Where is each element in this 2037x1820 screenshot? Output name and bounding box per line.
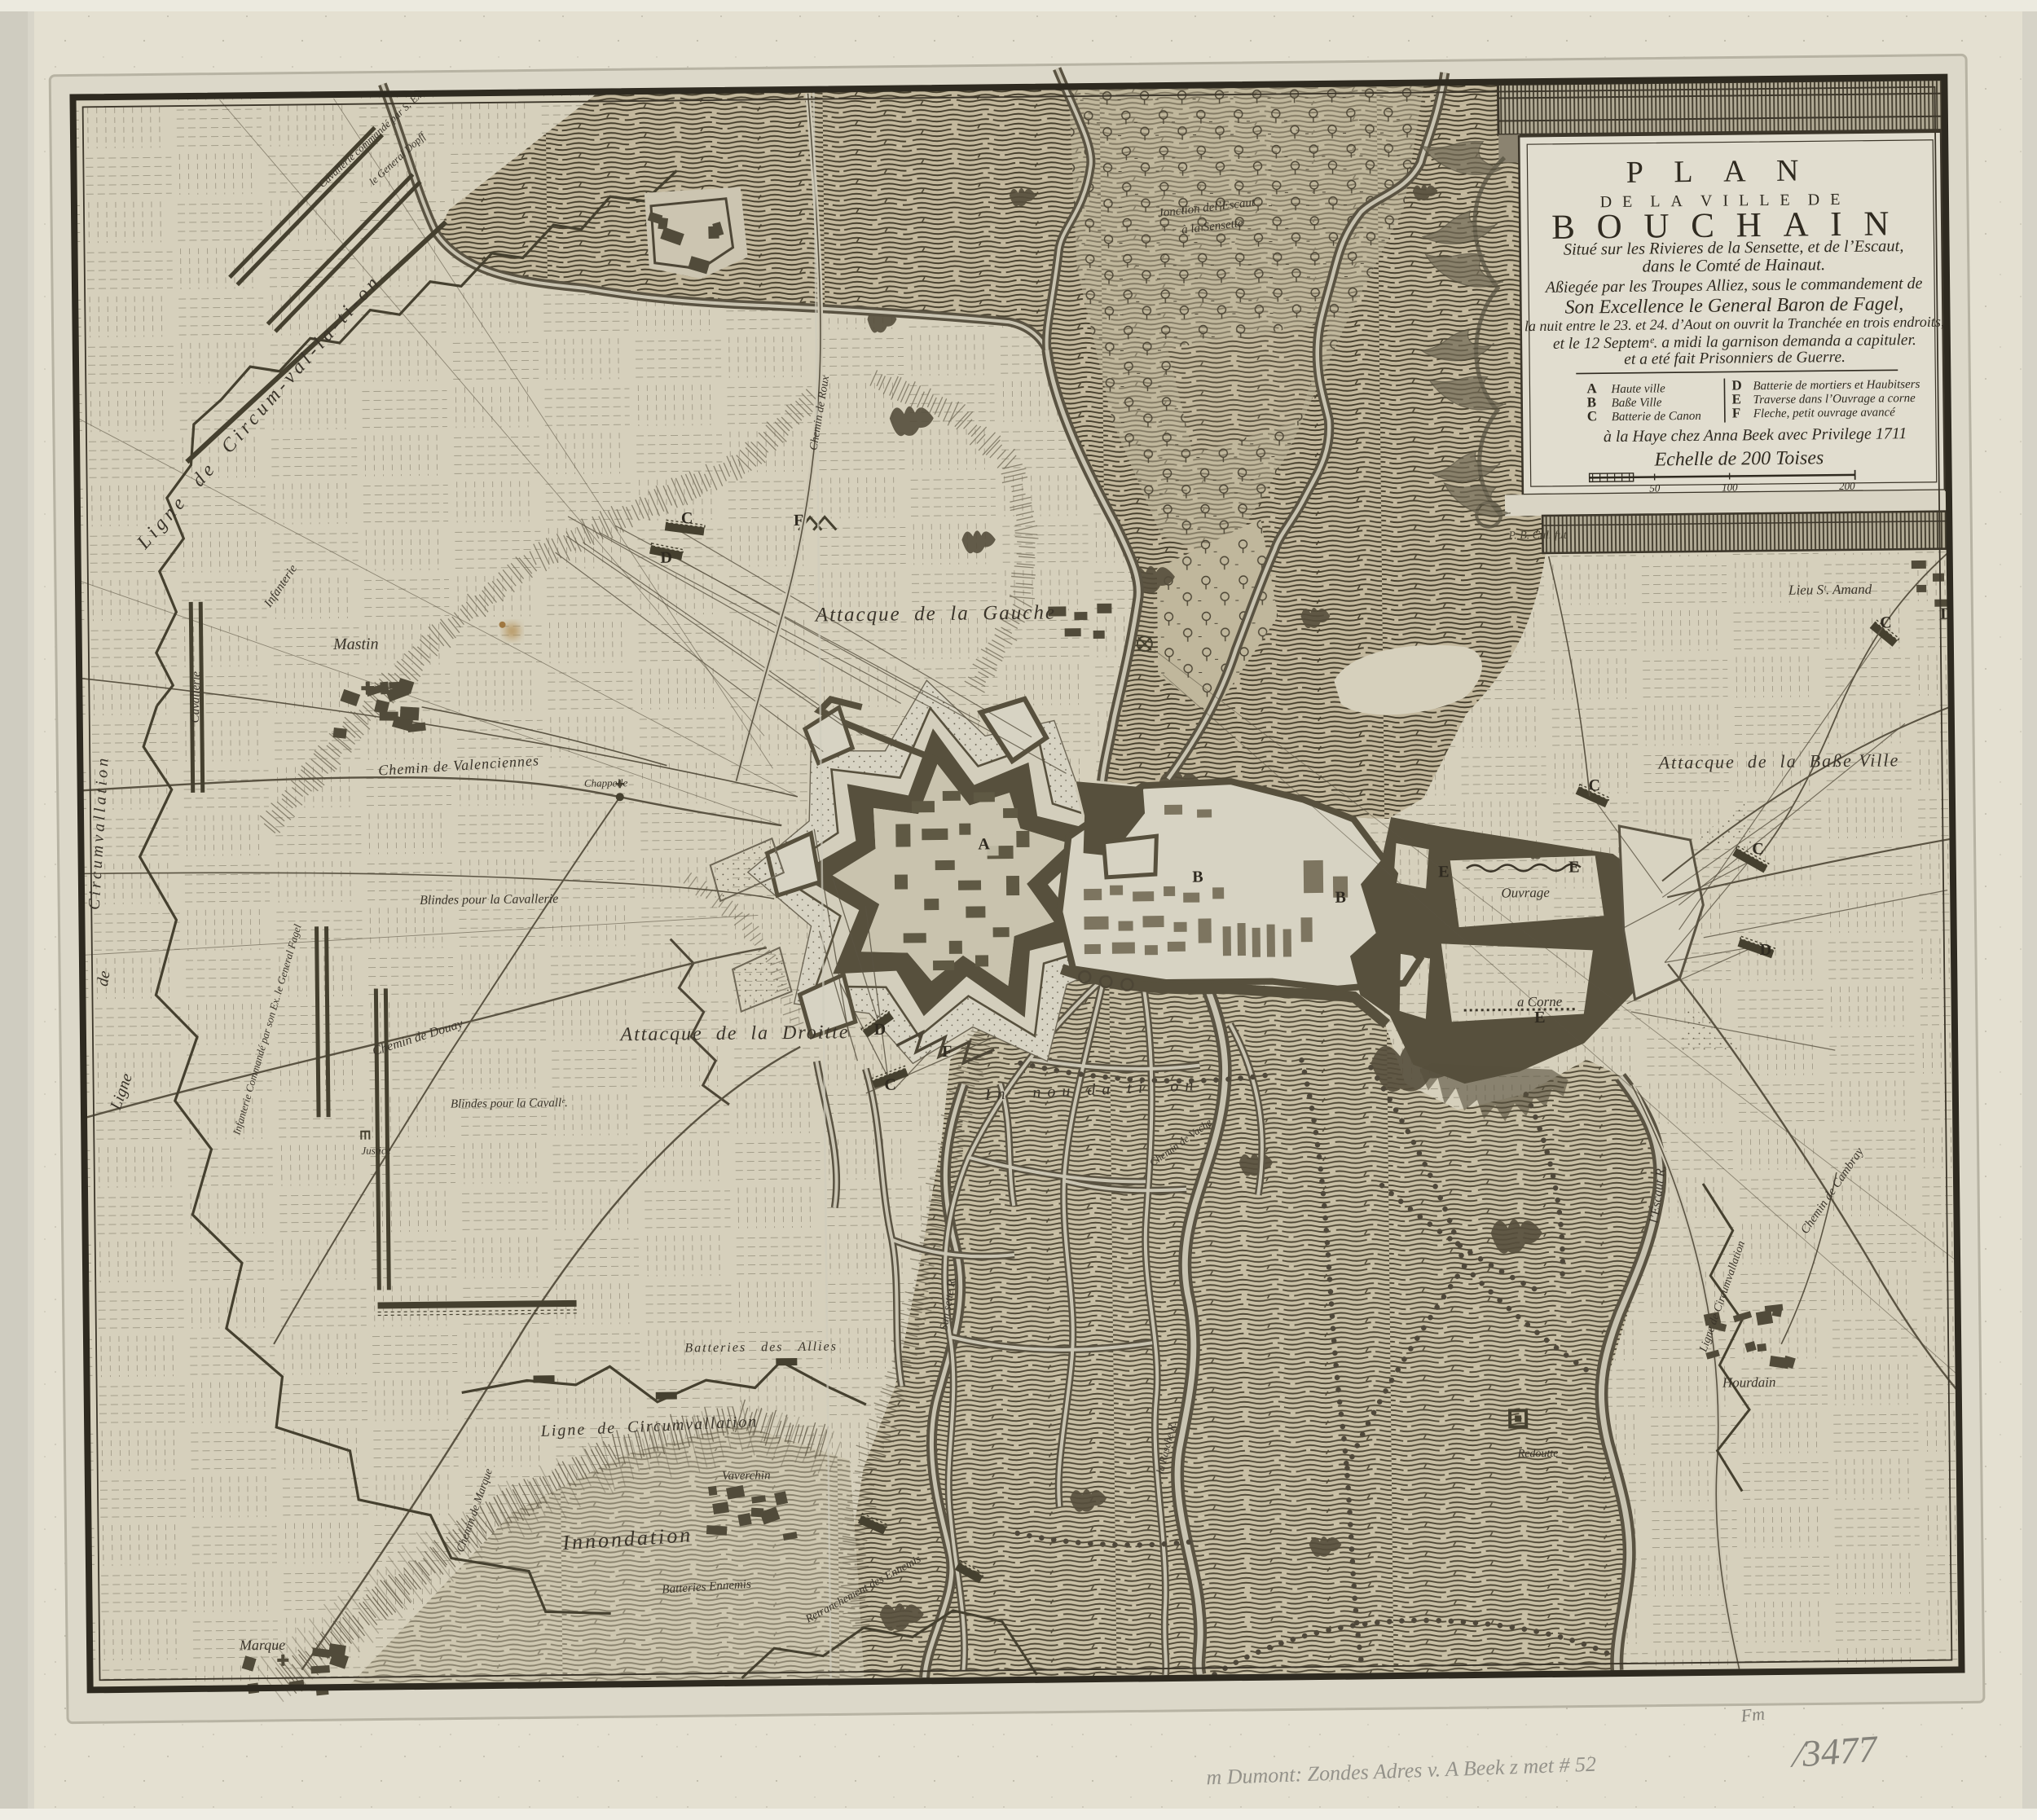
svg-text:C: C bbox=[1880, 613, 1892, 631]
svg-text:100: 100 bbox=[1722, 481, 1738, 493]
svg-text:F: F bbox=[794, 512, 803, 530]
svg-text:D: D bbox=[1760, 941, 1772, 959]
svg-text:Attacque de la Gauche: Attacque de la Gauche bbox=[814, 601, 1056, 626]
svg-text:E: E bbox=[1438, 863, 1450, 881]
svg-text:à la Haye chez Anna Beek avec: à la Haye chez Anna Beek avec Privilege … bbox=[1604, 424, 1907, 446]
svg-text:E: E bbox=[1534, 1009, 1546, 1026]
svg-text:C: C bbox=[681, 509, 693, 527]
svg-text:C: C bbox=[1588, 776, 1600, 794]
svg-text:Ouvrage: Ouvrage bbox=[1501, 885, 1550, 901]
svg-text:Chappelle: Chappelle bbox=[584, 776, 628, 789]
svg-text:C: C bbox=[884, 1076, 896, 1094]
svg-text:P L A N: P L A N bbox=[1626, 153, 1810, 189]
svg-text:50: 50 bbox=[1649, 481, 1661, 494]
svg-text:dans le Comté de Hainaut.: dans le Comté de Hainaut. bbox=[1642, 254, 1825, 275]
svg-text:Baße Ville: Baße Ville bbox=[1612, 396, 1662, 410]
svg-text:F: F bbox=[942, 1043, 952, 1061]
svg-text:Redoutte: Redoutte bbox=[1517, 1448, 1559, 1461]
svg-text:P. B. Cal. fut: P. B. Cal. fut bbox=[1507, 530, 1568, 543]
svg-text:B: B bbox=[1335, 889, 1346, 907]
svg-text:A: A bbox=[978, 835, 990, 853]
svg-text:Batterie de mortiers et Haubit: Batterie de mortiers et Haubitsers bbox=[1753, 378, 1920, 393]
svg-text:de: de bbox=[94, 969, 114, 987]
svg-text:Haute ville: Haute ville bbox=[1610, 382, 1665, 396]
svg-text:Blindes pour la Cavallᵉ.: Blindes pour la Cavallᵉ. bbox=[451, 1097, 568, 1111]
svg-text:Hourdain: Hourdain bbox=[1722, 1374, 1776, 1391]
svg-text:Traverse dans l’Ouvrage a corn: Traverse dans l’Ouvrage a corne bbox=[1753, 392, 1916, 407]
svg-text:Lieu Sᵗ. Amand: Lieu Sᵗ. Amand bbox=[1788, 582, 1872, 598]
svg-text:Blindes pour la Cavallerie: Blindes pour la Cavallerie bbox=[420, 892, 558, 908]
svg-text:B: B bbox=[1192, 868, 1203, 886]
svg-text:Cavallerie: Cavallerie bbox=[189, 671, 204, 723]
svg-text:Echelle de 200 Toises: Echelle de 200 Toises bbox=[1653, 447, 1824, 470]
svg-text:Fm: Fm bbox=[1739, 1704, 1766, 1726]
svg-text:200: 200 bbox=[1839, 480, 1855, 492]
svg-text:Mastin: Mastin bbox=[332, 635, 379, 653]
svg-text:Vaverchin: Vaverchin bbox=[722, 1469, 771, 1483]
svg-text:D: D bbox=[874, 1021, 887, 1039]
svg-text:C: C bbox=[1587, 408, 1597, 424]
svg-text:F: F bbox=[1732, 405, 1741, 420]
svg-text:Fleche, petit ouvrage avancé: Fleche, petit ouvrage avancé bbox=[1753, 406, 1897, 420]
svg-text:⁄3477: ⁄3477 bbox=[1787, 1727, 1880, 1775]
svg-text:D: D bbox=[660, 549, 672, 567]
svg-text:C: C bbox=[1752, 840, 1764, 858]
svg-text:Batterie de Canon: Batterie de Canon bbox=[1612, 410, 1701, 424]
svg-text:et a eté fait Prisonniers de G: et a eté fait Prisonniers de Guerre. bbox=[1624, 349, 1846, 368]
svg-text:Marque: Marque bbox=[239, 1637, 286, 1654]
svg-text:Batteries des Allies: Batteries des Allies bbox=[684, 1339, 838, 1355]
svg-text:Attacque de la Baße Ville: Attacque de la Baße Ville bbox=[1656, 750, 1899, 772]
svg-text:E: E bbox=[1568, 859, 1580, 877]
svg-text:Justice: Justice bbox=[361, 1144, 390, 1156]
svg-text:Attacque de la Droitte: Attacque de la Droitte bbox=[618, 1022, 849, 1045]
svg-text:a Corne: a Corne bbox=[1517, 994, 1563, 1010]
